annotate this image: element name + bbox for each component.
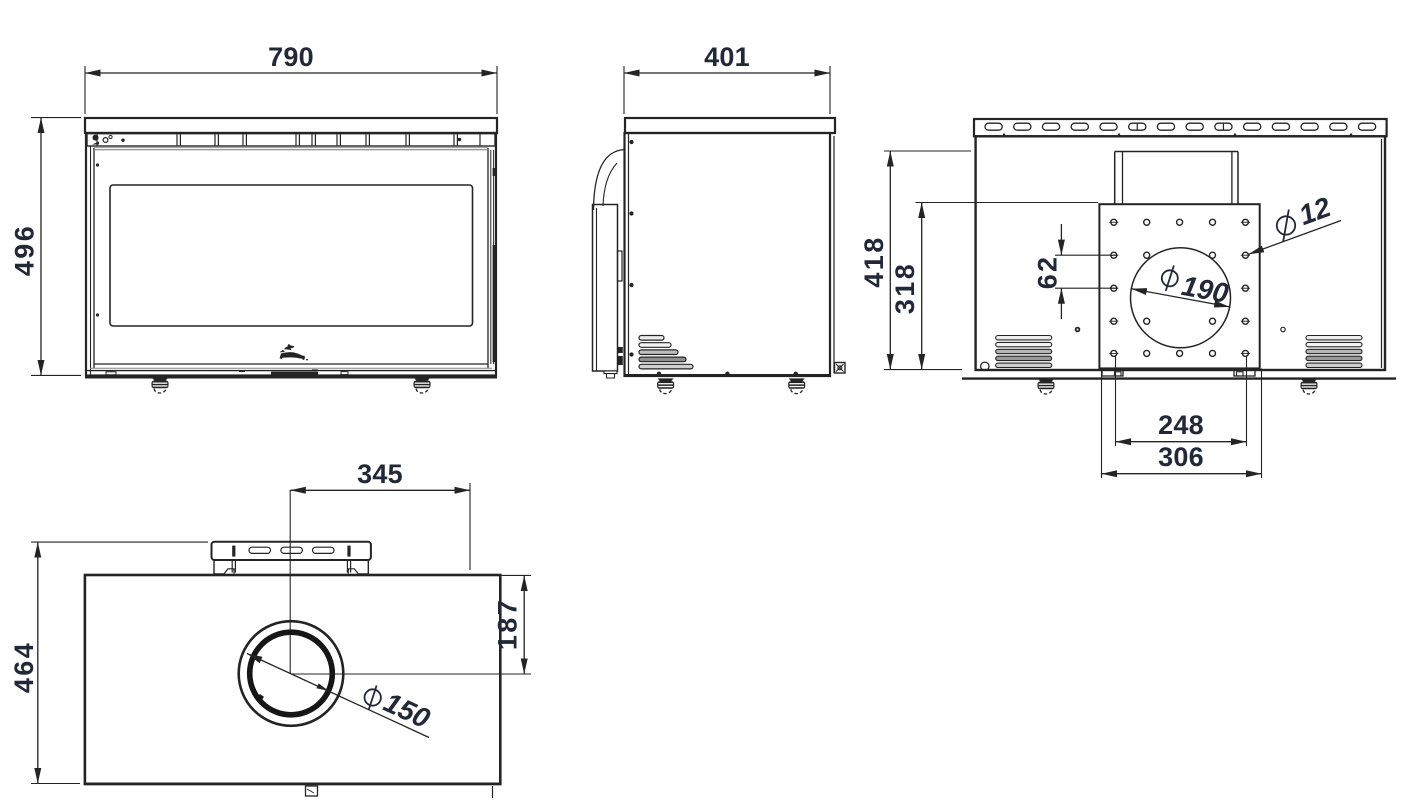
- svg-text:401: 401: [704, 42, 750, 72]
- svg-text:187: 187: [493, 598, 523, 650]
- svg-text:418: 418: [859, 235, 889, 287]
- svg-text:790: 790: [268, 42, 314, 72]
- svg-text:496: 496: [10, 224, 40, 276]
- svg-text:345: 345: [357, 459, 403, 489]
- svg-text:464: 464: [9, 641, 39, 693]
- svg-text:306: 306: [1158, 442, 1204, 472]
- svg-text:318: 318: [890, 262, 920, 314]
- svg-text:62: 62: [1033, 255, 1063, 289]
- svg-text:248: 248: [1158, 410, 1204, 440]
